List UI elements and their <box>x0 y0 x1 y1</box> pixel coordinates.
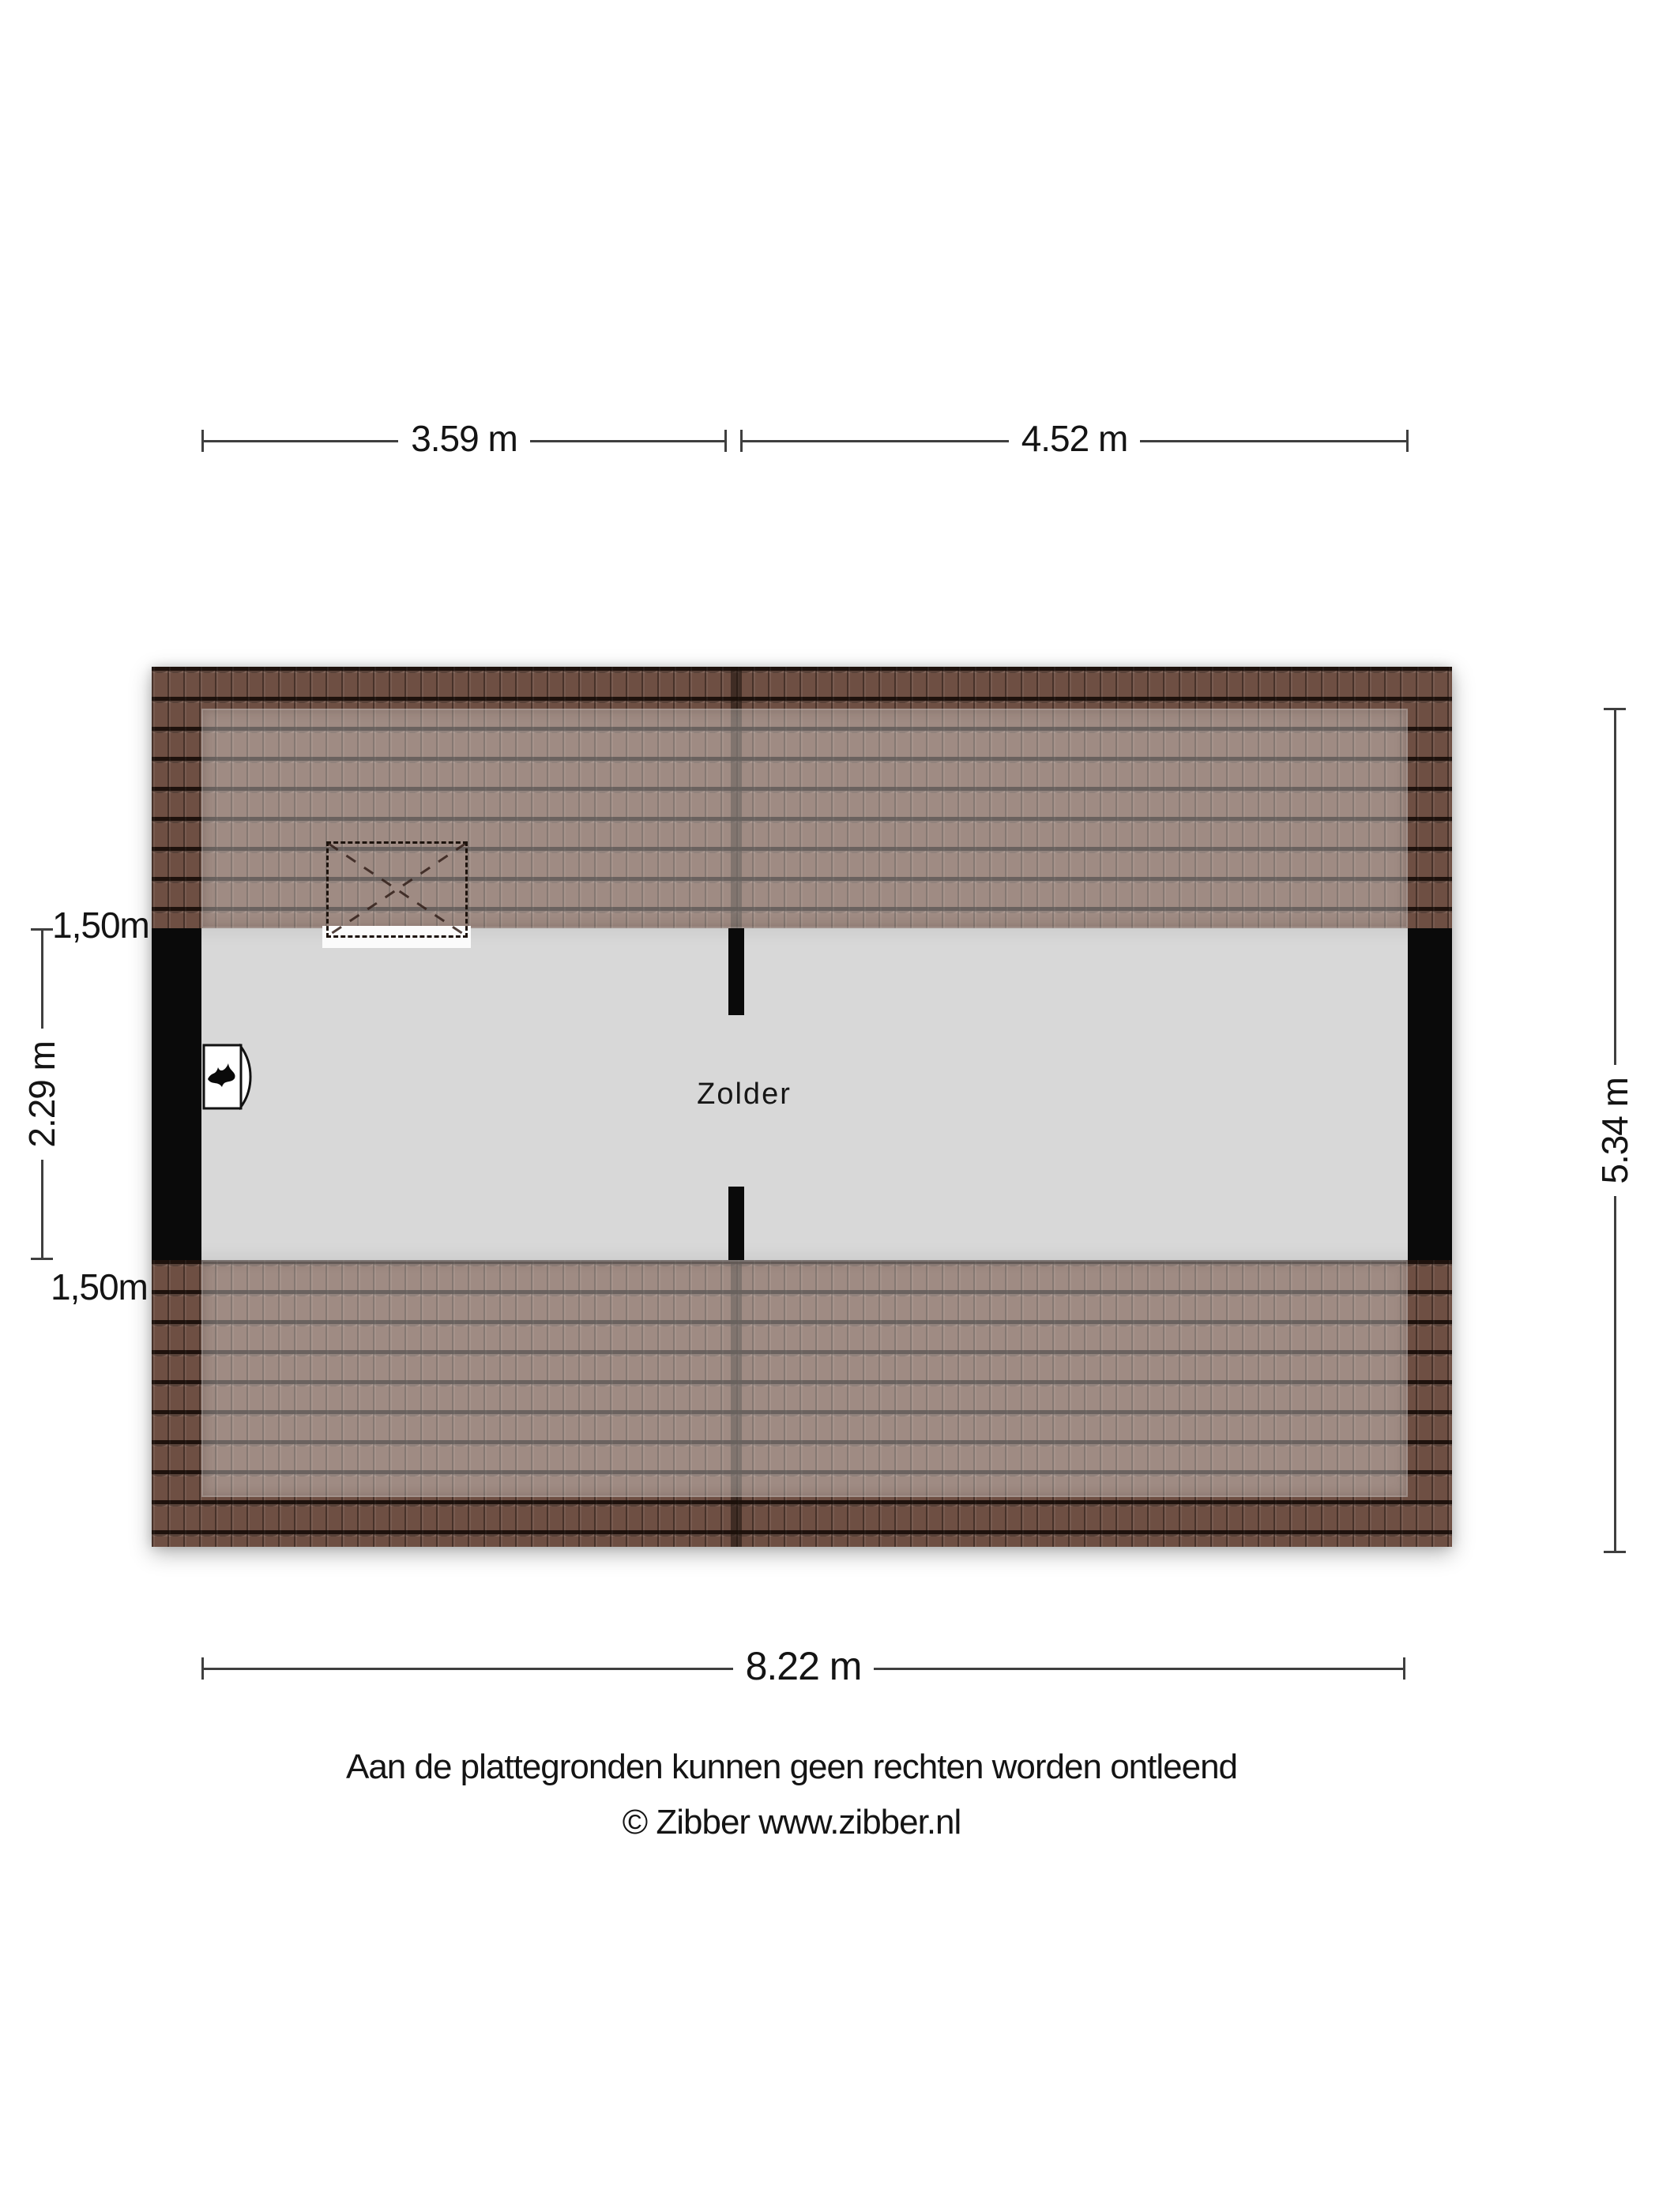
roof-bottom-interior-overlay <box>201 1260 1408 1497</box>
floor-plan: Zolder <box>152 667 1452 1547</box>
flame-icon <box>202 1044 258 1110</box>
dimension-label-bottom: 8.22 m <box>733 1643 875 1689</box>
dimension-tick <box>201 1657 204 1680</box>
heater-unit <box>202 1044 258 1110</box>
footer-copyright: © Zibber www.zibber.nl <box>0 1803 1583 1842</box>
dimension-top-left: 3.59 m <box>201 423 727 459</box>
footer-disclaimer: Aan de plattegronden kunnen geen rechten… <box>0 1747 1583 1787</box>
dimension-label-top-left: 3.59 m <box>398 417 530 460</box>
dimension-tick <box>740 430 743 452</box>
floorplan-canvas: 3.59 m 4.52 m 1,50m 2.29 m 1,50m 5.34 m <box>0 0 1659 2212</box>
dimension-label-left: 2.29 m <box>21 1029 63 1161</box>
dimension-label-top-right: 4.52 m <box>1009 417 1141 460</box>
dimension-tick <box>1403 1657 1405 1680</box>
skylight-dashed-outline <box>326 841 468 938</box>
dimension-tick <box>1406 430 1409 452</box>
dimension-label-right: 5.34 m <box>1593 1065 1636 1197</box>
dimension-tick <box>31 1258 53 1260</box>
dimension-top-right: 4.52 m <box>740 423 1409 459</box>
dimension-tick <box>724 430 727 452</box>
dimension-left: 2.29 m <box>24 928 60 1260</box>
dimension-tick <box>1604 708 1626 710</box>
skylight-cross-icon <box>329 844 465 935</box>
divider-wall-bottom <box>728 1187 744 1260</box>
room-label-zolder: Zolder <box>626 1078 863 1112</box>
dimension-bottom: 8.22 m <box>201 1650 1405 1687</box>
dimension-tick <box>1604 1551 1626 1553</box>
dimension-label-roof-bottom: 1,50m <box>51 1266 148 1308</box>
divider-wall-top <box>728 928 744 1015</box>
dimension-tick <box>31 928 53 931</box>
right-wall <box>1408 928 1452 1260</box>
dimension-right: 5.34 m <box>1597 708 1633 1553</box>
dimension-label-roof-top: 1,50m <box>52 904 149 946</box>
left-wall <box>152 928 201 1260</box>
dimension-tick <box>201 430 204 452</box>
